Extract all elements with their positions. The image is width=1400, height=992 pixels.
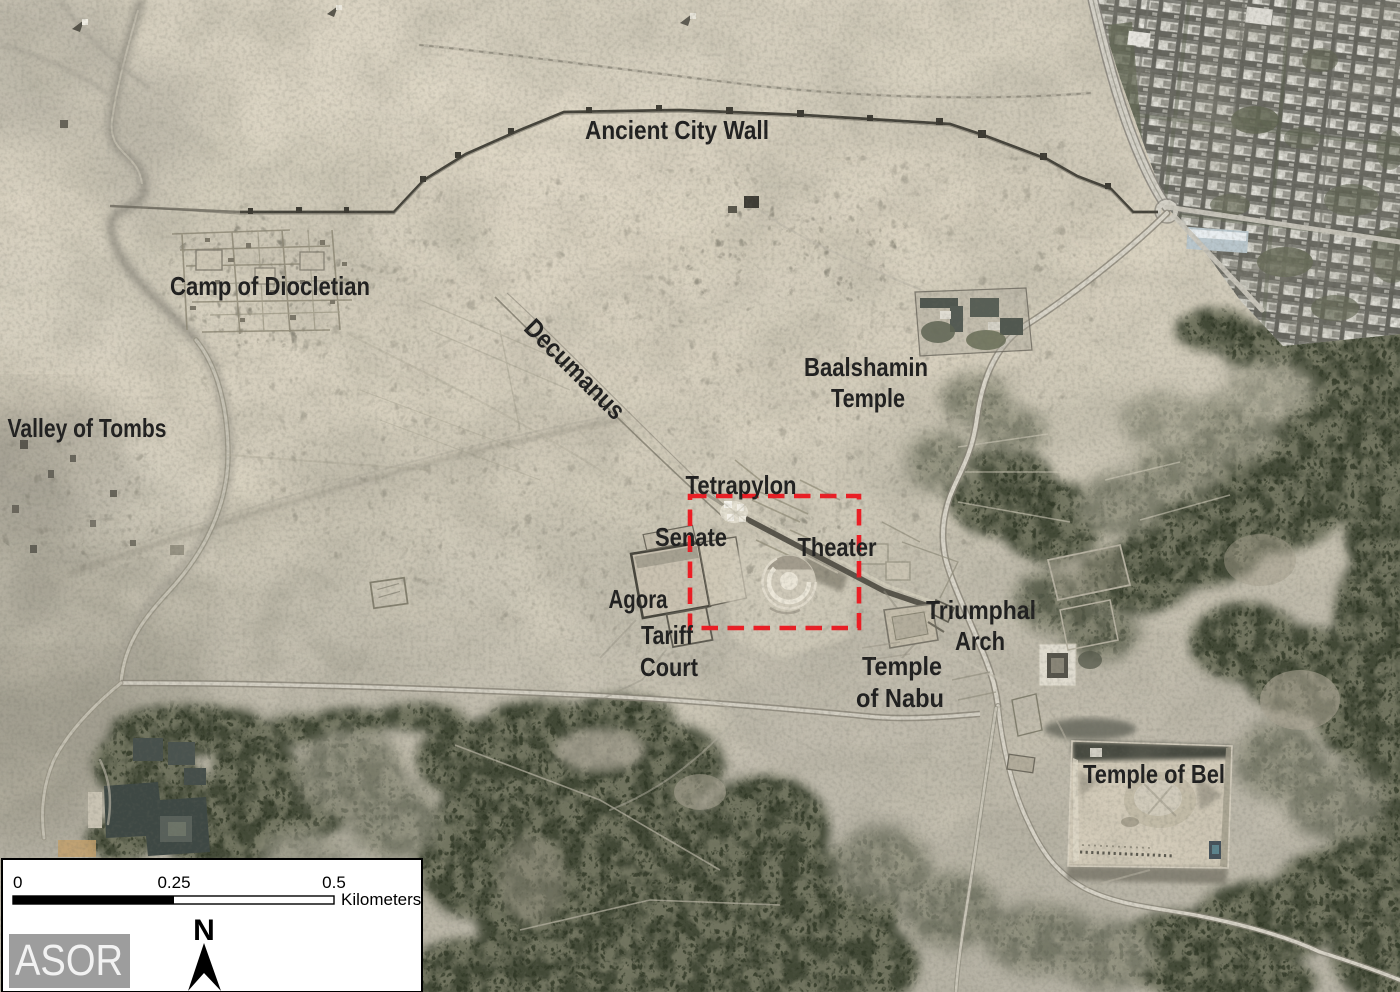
svg-text:ASOR: ASOR: [15, 936, 123, 985]
svg-text:0: 0: [13, 873, 22, 892]
svg-text:N: N: [193, 914, 215, 947]
svg-text:0.25: 0.25: [157, 873, 190, 892]
svg-text:Kilometers: Kilometers: [341, 890, 421, 909]
